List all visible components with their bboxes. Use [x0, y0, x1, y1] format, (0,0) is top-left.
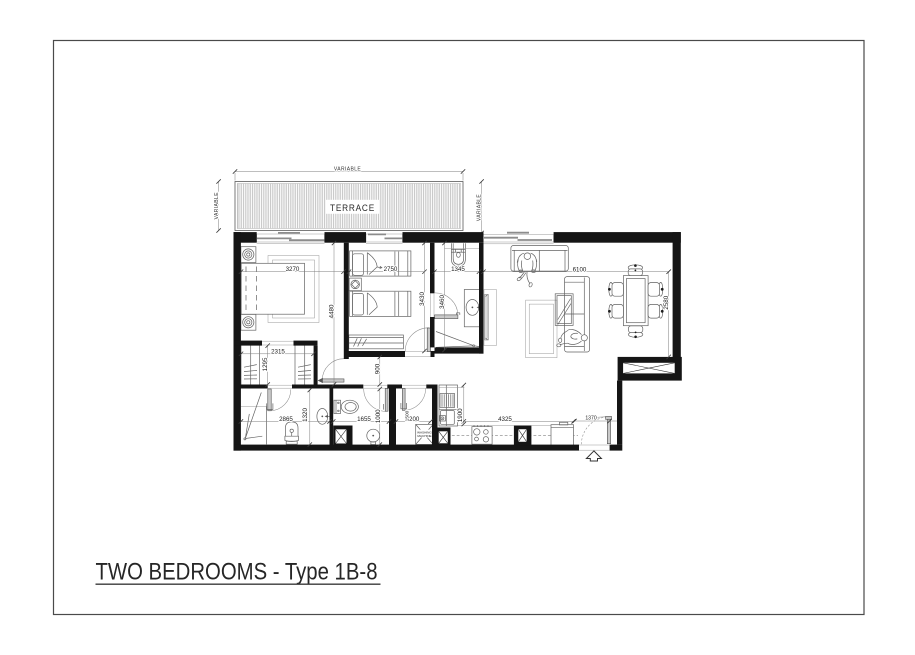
svg-text:1655: 1655 — [357, 416, 371, 423]
svg-text:1345: 1345 — [451, 266, 465, 273]
svg-text:1000: 1000 — [375, 409, 382, 423]
svg-text:VARIABLE: VARIABLE — [214, 192, 220, 220]
svg-text:1320: 1320 — [302, 408, 309, 422]
svg-text:2580: 2580 — [663, 295, 670, 309]
svg-text:VARIABLE: VARIABLE — [477, 194, 483, 222]
svg-text:6100: 6100 — [573, 266, 587, 273]
svg-text:3430: 3430 — [419, 292, 426, 306]
svg-text:1295: 1295 — [262, 357, 269, 371]
svg-text:MACHINE: MACHINE — [417, 434, 431, 438]
svg-text:900: 900 — [374, 363, 381, 374]
svg-text:4325: 4325 — [498, 416, 512, 423]
svg-text:1370: 1370 — [585, 415, 596, 421]
svg-text:3270: 3270 — [286, 266, 300, 273]
svg-text:3460: 3460 — [439, 295, 446, 309]
svg-text:VARIABLE: VARIABLE — [334, 166, 362, 172]
svg-text:TERRACE: TERRACE — [330, 203, 375, 214]
svg-text:TWO BEDROOMS - Type 1B-8: TWO BEDROOMS - Type 1B-8 — [96, 559, 378, 586]
svg-text:4480: 4480 — [328, 304, 335, 318]
svg-text:2865: 2865 — [279, 416, 293, 423]
svg-text:1500: 1500 — [405, 410, 411, 421]
svg-text:2315: 2315 — [271, 348, 285, 355]
svg-text:1900: 1900 — [457, 408, 464, 422]
svg-text:2750: 2750 — [384, 266, 398, 273]
